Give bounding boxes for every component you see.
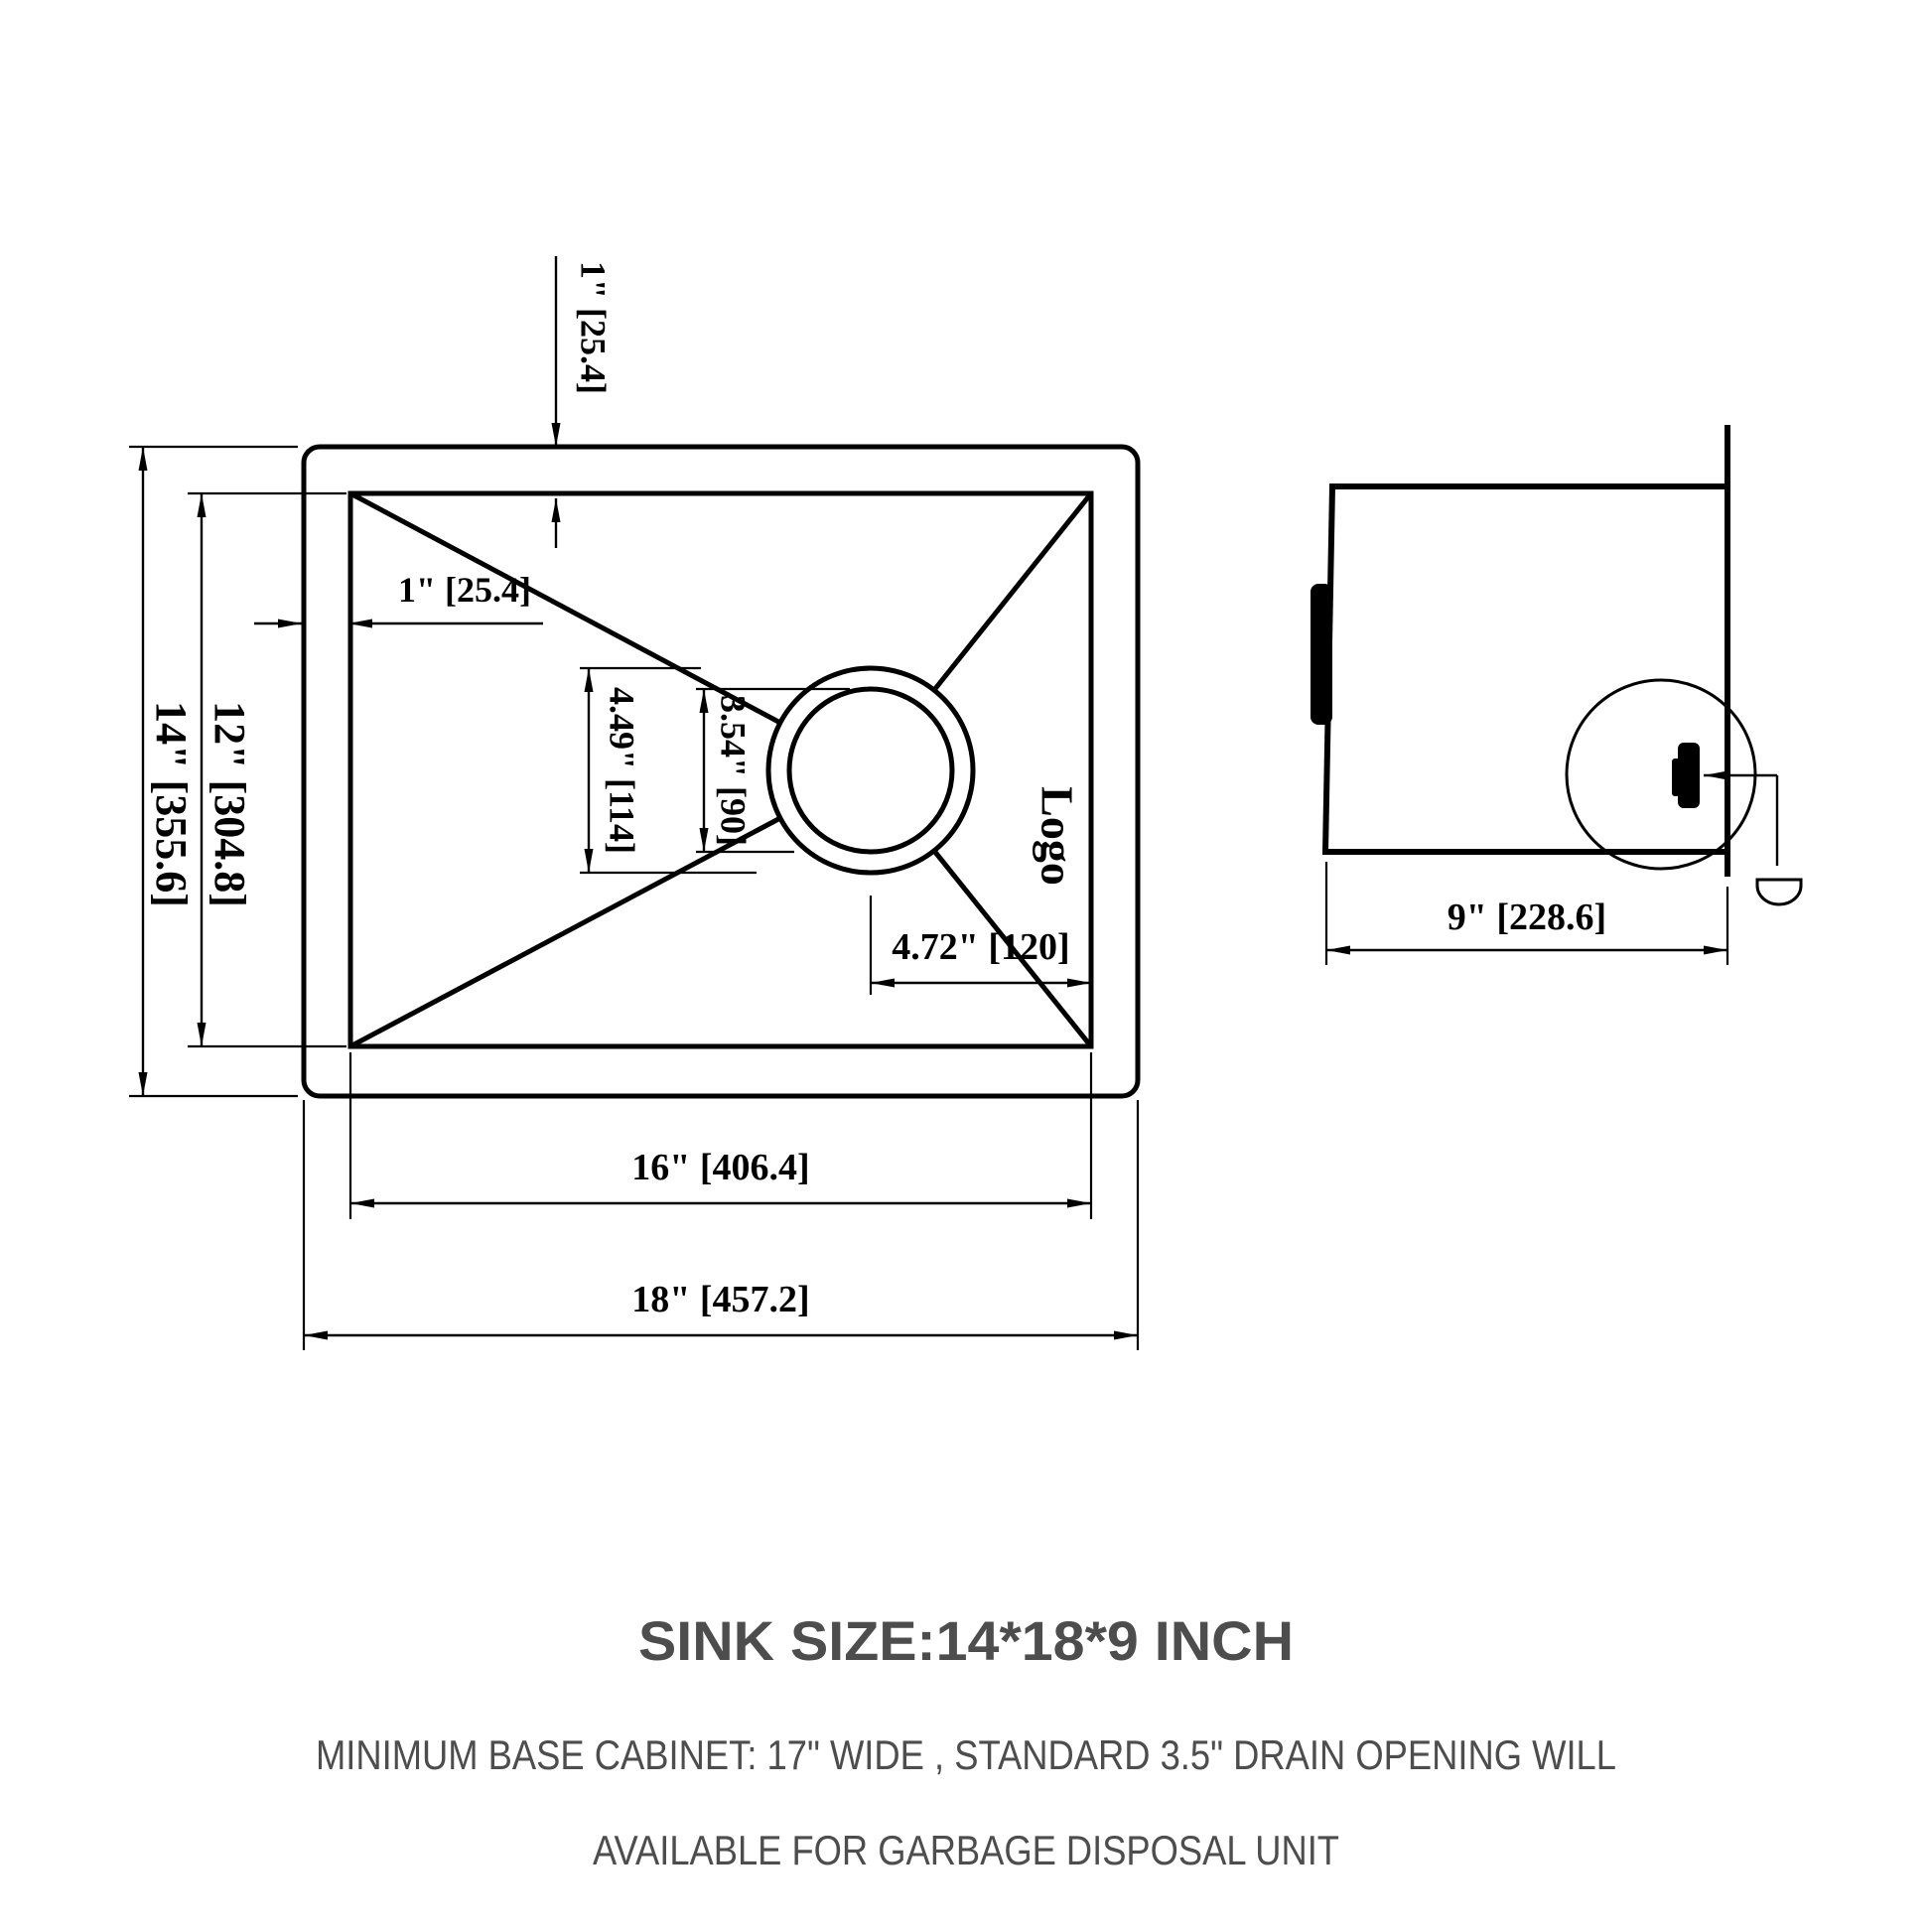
- drain-stub: [1311, 584, 1332, 725]
- dim-label: 3.54" [90]: [714, 695, 754, 846]
- dim-label: 18" [457.2]: [631, 1279, 809, 1320]
- drain-flange-circle: [768, 668, 973, 873]
- top-view: Logo 1" [25.4] 14" [355.6] 12" [304.8] 1…: [129, 256, 1138, 1350]
- technical-drawing-canvas: Logo 1" [25.4] 14" [355.6] 12" [304.8] 1…: [0, 0, 1932, 1932]
- dim-top-rim: 1" [25.4]: [556, 256, 614, 548]
- note-line-2: AVAILABLE FOR GARBAGE DISPOSAL UNIT: [593, 1827, 1339, 1873]
- dim-label: 1" [25.4]: [398, 570, 531, 610]
- clip-symbol: [1757, 880, 1801, 904]
- dim-label: 4.72" [120]: [892, 926, 1069, 968]
- notes-block: SINK SIZE:14*18*9 INCH MINIMUM BASE CABI…: [316, 1609, 1616, 1873]
- dim-depth: 9" [228.6]: [1326, 862, 1727, 965]
- logo-text: Logo: [1032, 786, 1082, 886]
- sink-spec-sheet: Logo 1" [25.4] 14" [355.6] 12" [304.8] 1…: [0, 0, 1932, 1932]
- mounting-clip: [1678, 743, 1700, 808]
- dim-label: 12" [304.8]: [206, 701, 254, 907]
- sink-size-title: SINK SIZE:14*18*9 INCH: [638, 1609, 1294, 1672]
- dim-label: 9" [228.6]: [1448, 897, 1606, 938]
- dim-left-rim: 1" [25.4]: [254, 570, 543, 623]
- mounting-clip-tab: [1672, 759, 1680, 796]
- dim-label: 16" [406.4]: [631, 1147, 809, 1188]
- dim-drain-opening: 3.54" [90]: [696, 689, 850, 852]
- note-line-1: MINIMUM BASE CABINET: 17" WIDE , STANDAR…: [316, 1731, 1616, 1778]
- dim-label: 4.49" [114]: [603, 687, 642, 854]
- sink-body-profile: [1325, 486, 1727, 852]
- dim-inner-height: 12" [304.8]: [188, 493, 346, 1046]
- bowl-diagonal-top-right: [934, 493, 1091, 690]
- side-view: 9" [228.6]: [1311, 425, 1801, 965]
- dim-outer-width: 18" [457.2]: [304, 1100, 1138, 1350]
- dim-inner-width: 16" [406.4]: [350, 1052, 1091, 1219]
- dim-label: 1" [25.4]: [574, 261, 614, 394]
- drain-opening-circle: [789, 689, 952, 852]
- dim-label: 14" [355.6]: [147, 701, 196, 907]
